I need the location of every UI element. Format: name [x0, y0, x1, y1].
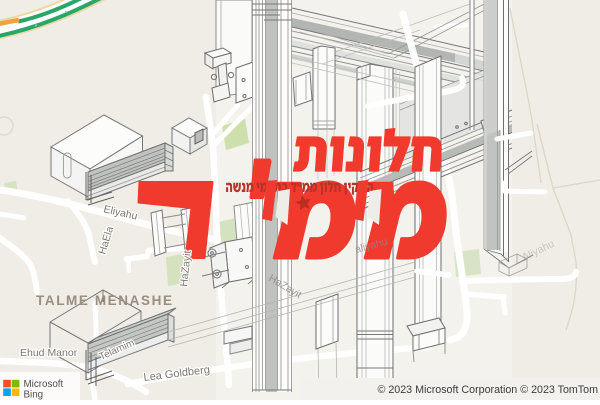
- svg-text:Microsoft: Microsoft: [24, 379, 64, 390]
- svg-text:© 2023 Microsoft Corporation ©: © 2023 Microsoft Corporation © 2023 TomT…: [378, 384, 599, 396]
- svg-text:Bing: Bing: [24, 390, 44, 401]
- svg-text:TALME MENASHE: TALME MENASHE: [36, 293, 174, 308]
- svg-text:Ehud Manor: Ehud Manor: [20, 347, 78, 359]
